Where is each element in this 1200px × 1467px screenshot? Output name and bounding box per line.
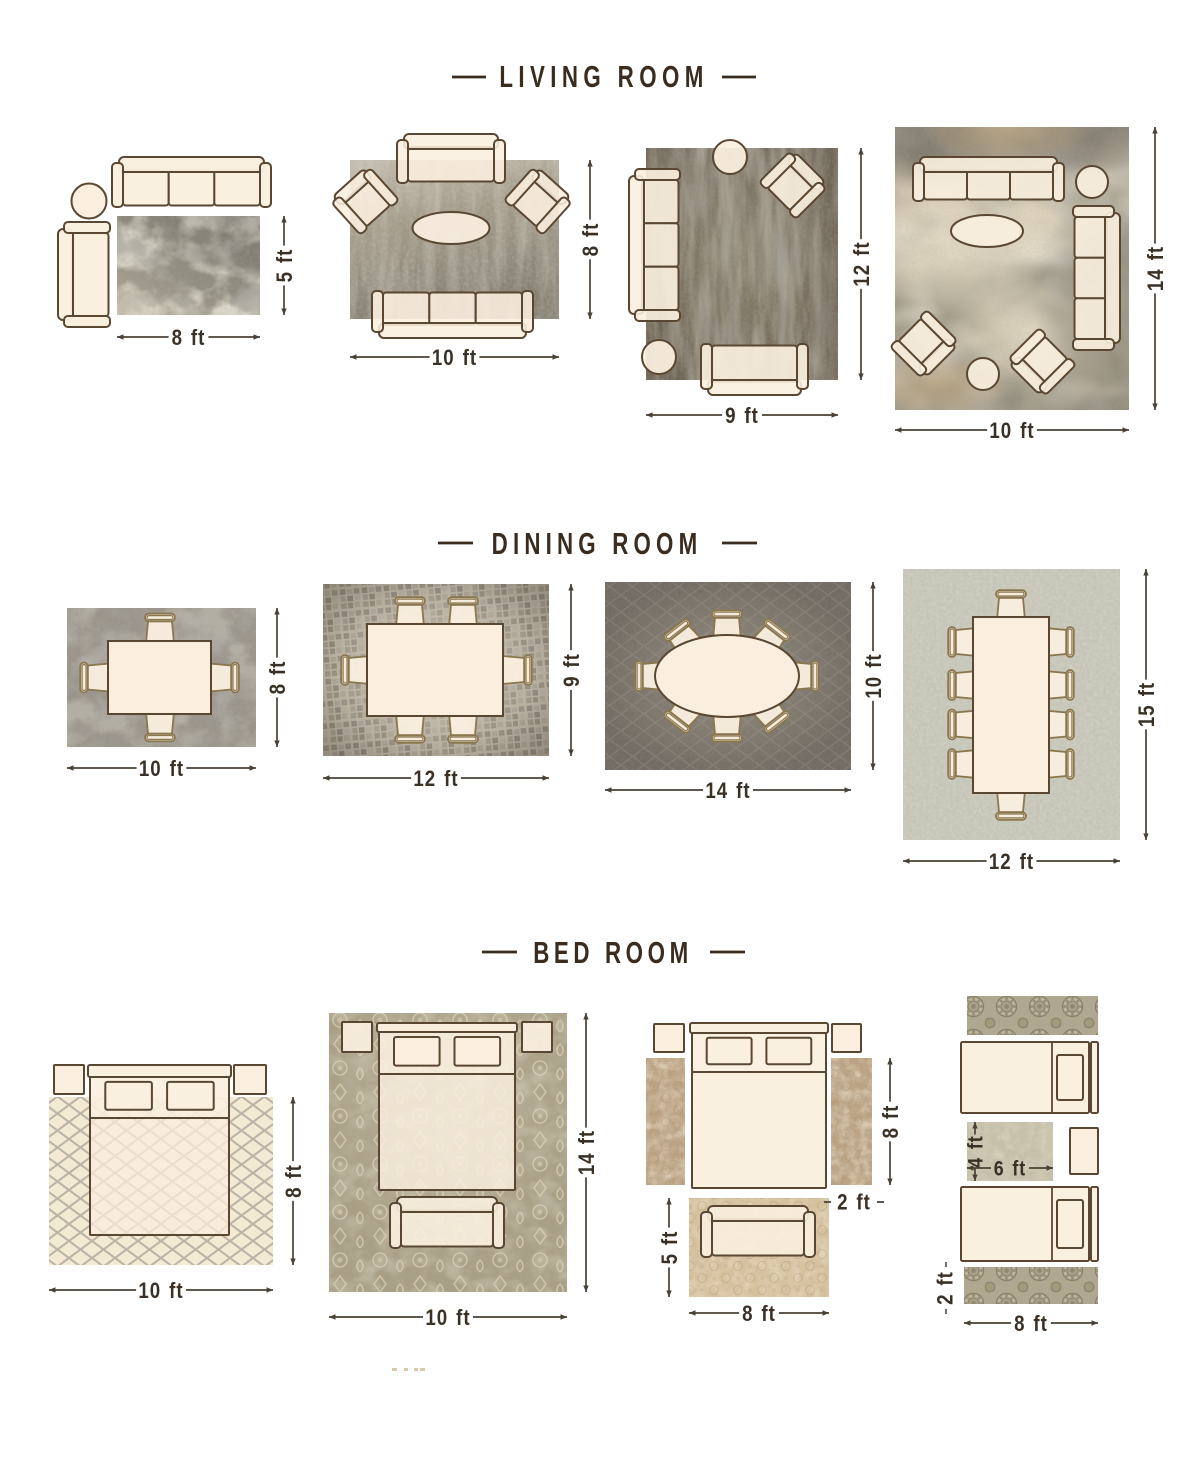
svg-text:DINING ROOM: DINING ROOM xyxy=(492,526,703,560)
svg-text:5 ft: 5 ft xyxy=(273,249,297,283)
svg-text:10 ft: 10 ft xyxy=(862,653,886,698)
svg-text:8 ft: 8 ft xyxy=(1014,1312,1048,1336)
svg-text:8 ft: 8 ft xyxy=(172,326,206,350)
svg-text:14 ft: 14 ft xyxy=(575,1130,599,1175)
svg-text:4 ft: 4 ft xyxy=(964,1135,988,1168)
svg-text:15 ft: 15 ft xyxy=(1135,682,1159,727)
svg-text:LIVING ROOM: LIVING ROOM xyxy=(499,59,708,93)
svg-text:8 ft: 8 ft xyxy=(879,1105,903,1139)
svg-text:9 ft: 9 ft xyxy=(560,653,584,687)
svg-text:2 ft: 2 ft xyxy=(837,1191,871,1215)
svg-text:6 ft: 6 ft xyxy=(994,1157,1027,1181)
svg-text:8 ft: 8 ft xyxy=(266,661,290,695)
svg-text:9 ft: 9 ft xyxy=(725,404,759,428)
svg-text:10 ft: 10 ft xyxy=(139,757,184,781)
svg-text:8 ft: 8 ft xyxy=(282,1164,306,1198)
svg-text:10 ft: 10 ft xyxy=(432,346,477,370)
svg-text:BED ROOM: BED ROOM xyxy=(533,935,693,969)
svg-text:14 ft: 14 ft xyxy=(1144,246,1168,291)
svg-text:8 ft: 8 ft xyxy=(579,223,603,257)
svg-text:12 ft: 12 ft xyxy=(850,241,874,286)
svg-text:2 ft: 2 ft xyxy=(934,1271,958,1305)
svg-text:5 ft: 5 ft xyxy=(658,1231,682,1265)
svg-text:12 ft: 12 ft xyxy=(989,850,1034,874)
svg-text:14 ft: 14 ft xyxy=(705,779,750,803)
svg-text:8 ft: 8 ft xyxy=(742,1302,776,1326)
svg-text:10 ft: 10 ft xyxy=(138,1279,183,1303)
svg-text:10 ft: 10 ft xyxy=(989,419,1034,443)
svg-text:10 ft: 10 ft xyxy=(425,1306,470,1330)
svg-text:12 ft: 12 ft xyxy=(413,767,458,791)
